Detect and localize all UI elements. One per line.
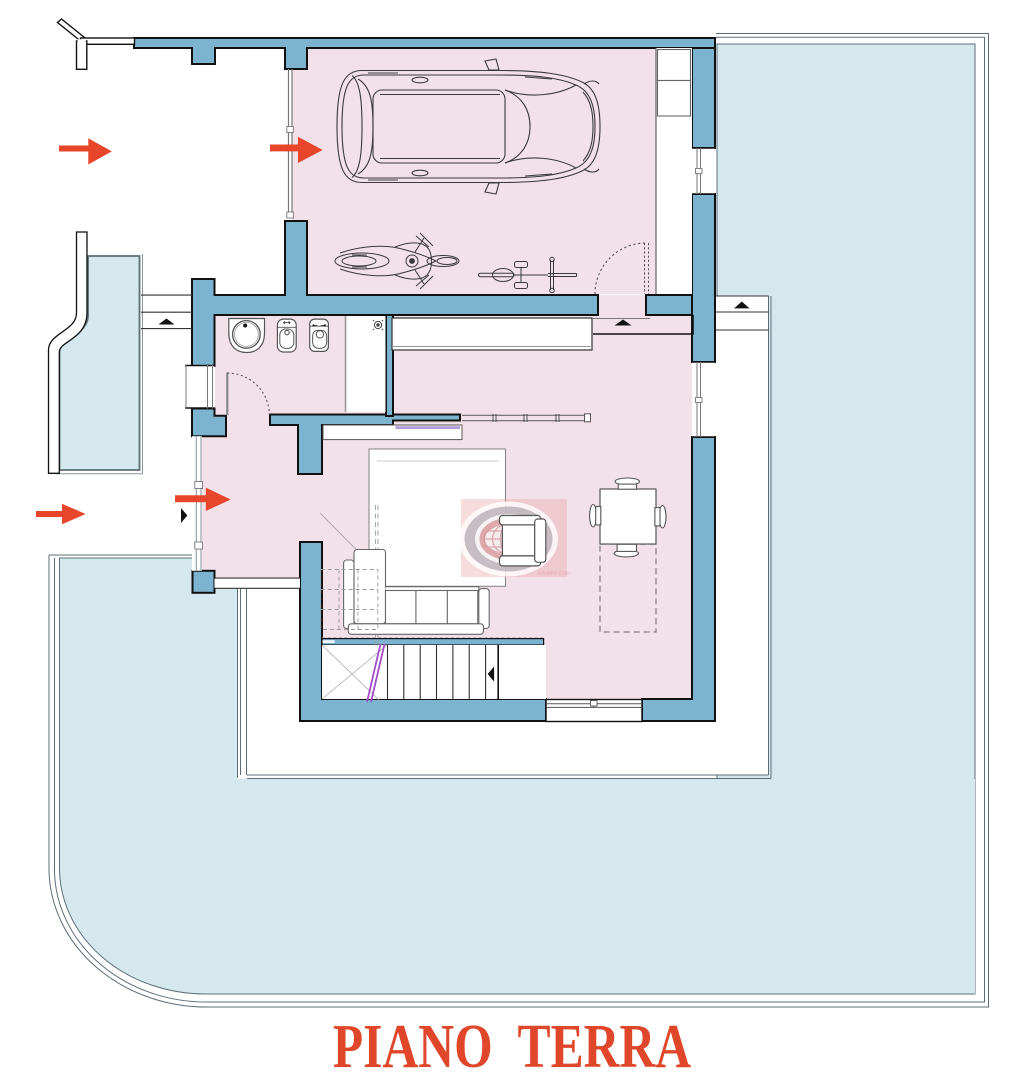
svg-text:GRUPPO CASA: GRUPPO CASA (538, 571, 571, 576)
